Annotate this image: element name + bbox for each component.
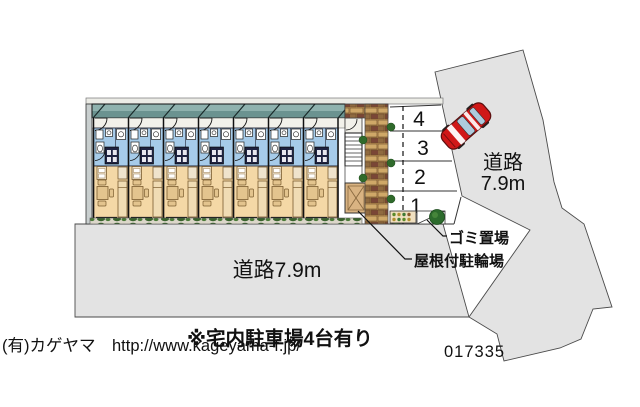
road-right-label-line2: 7.9m — [481, 173, 525, 195]
staircase — [345, 118, 362, 183]
bush-icon — [359, 136, 367, 144]
bush-icon — [359, 174, 367, 182]
parking-space-number-4: 4 — [413, 108, 425, 131]
apartment-unit — [164, 118, 199, 219]
building — [86, 104, 367, 224]
road-right-label-line1: 道路 — [483, 151, 523, 174]
road-bottom-label: 道路7.9m — [233, 259, 322, 282]
building-roof — [92, 104, 345, 118]
building-corridor — [92, 118, 345, 128]
garbage-label: ゴミ置場 — [449, 229, 509, 247]
plan-number: 017335 — [444, 343, 505, 361]
tree-icon — [430, 210, 445, 225]
apartment-unit — [269, 118, 304, 219]
bicycle-parking-deck — [345, 183, 367, 213]
parking-note: ※宅内駐車場4台有り — [187, 327, 373, 350]
apartment-unit — [304, 118, 339, 219]
bush-icon — [387, 195, 395, 203]
bicycle-parking-label: 屋根付駐輪場 — [414, 252, 504, 270]
grass-strip — [90, 218, 362, 224]
apartment-units — [94, 118, 339, 219]
site-plan-page: 4 3 2 1 — [0, 0, 640, 407]
bush-icon — [387, 159, 395, 167]
parking-line — [390, 105, 441, 107]
parking-space-number-3: 3 — [417, 137, 429, 160]
parking-space-number-2: 2 — [414, 166, 426, 189]
apartment-unit — [234, 118, 269, 219]
bush-icon — [387, 123, 395, 131]
apartment-unit — [94, 118, 129, 219]
apartment-unit — [199, 118, 234, 219]
apartment-unit — [129, 118, 164, 219]
flower-bed — [390, 211, 416, 223]
building-left-wall — [86, 104, 92, 224]
site-plan-svg: 4 3 2 1 — [0, 0, 640, 407]
